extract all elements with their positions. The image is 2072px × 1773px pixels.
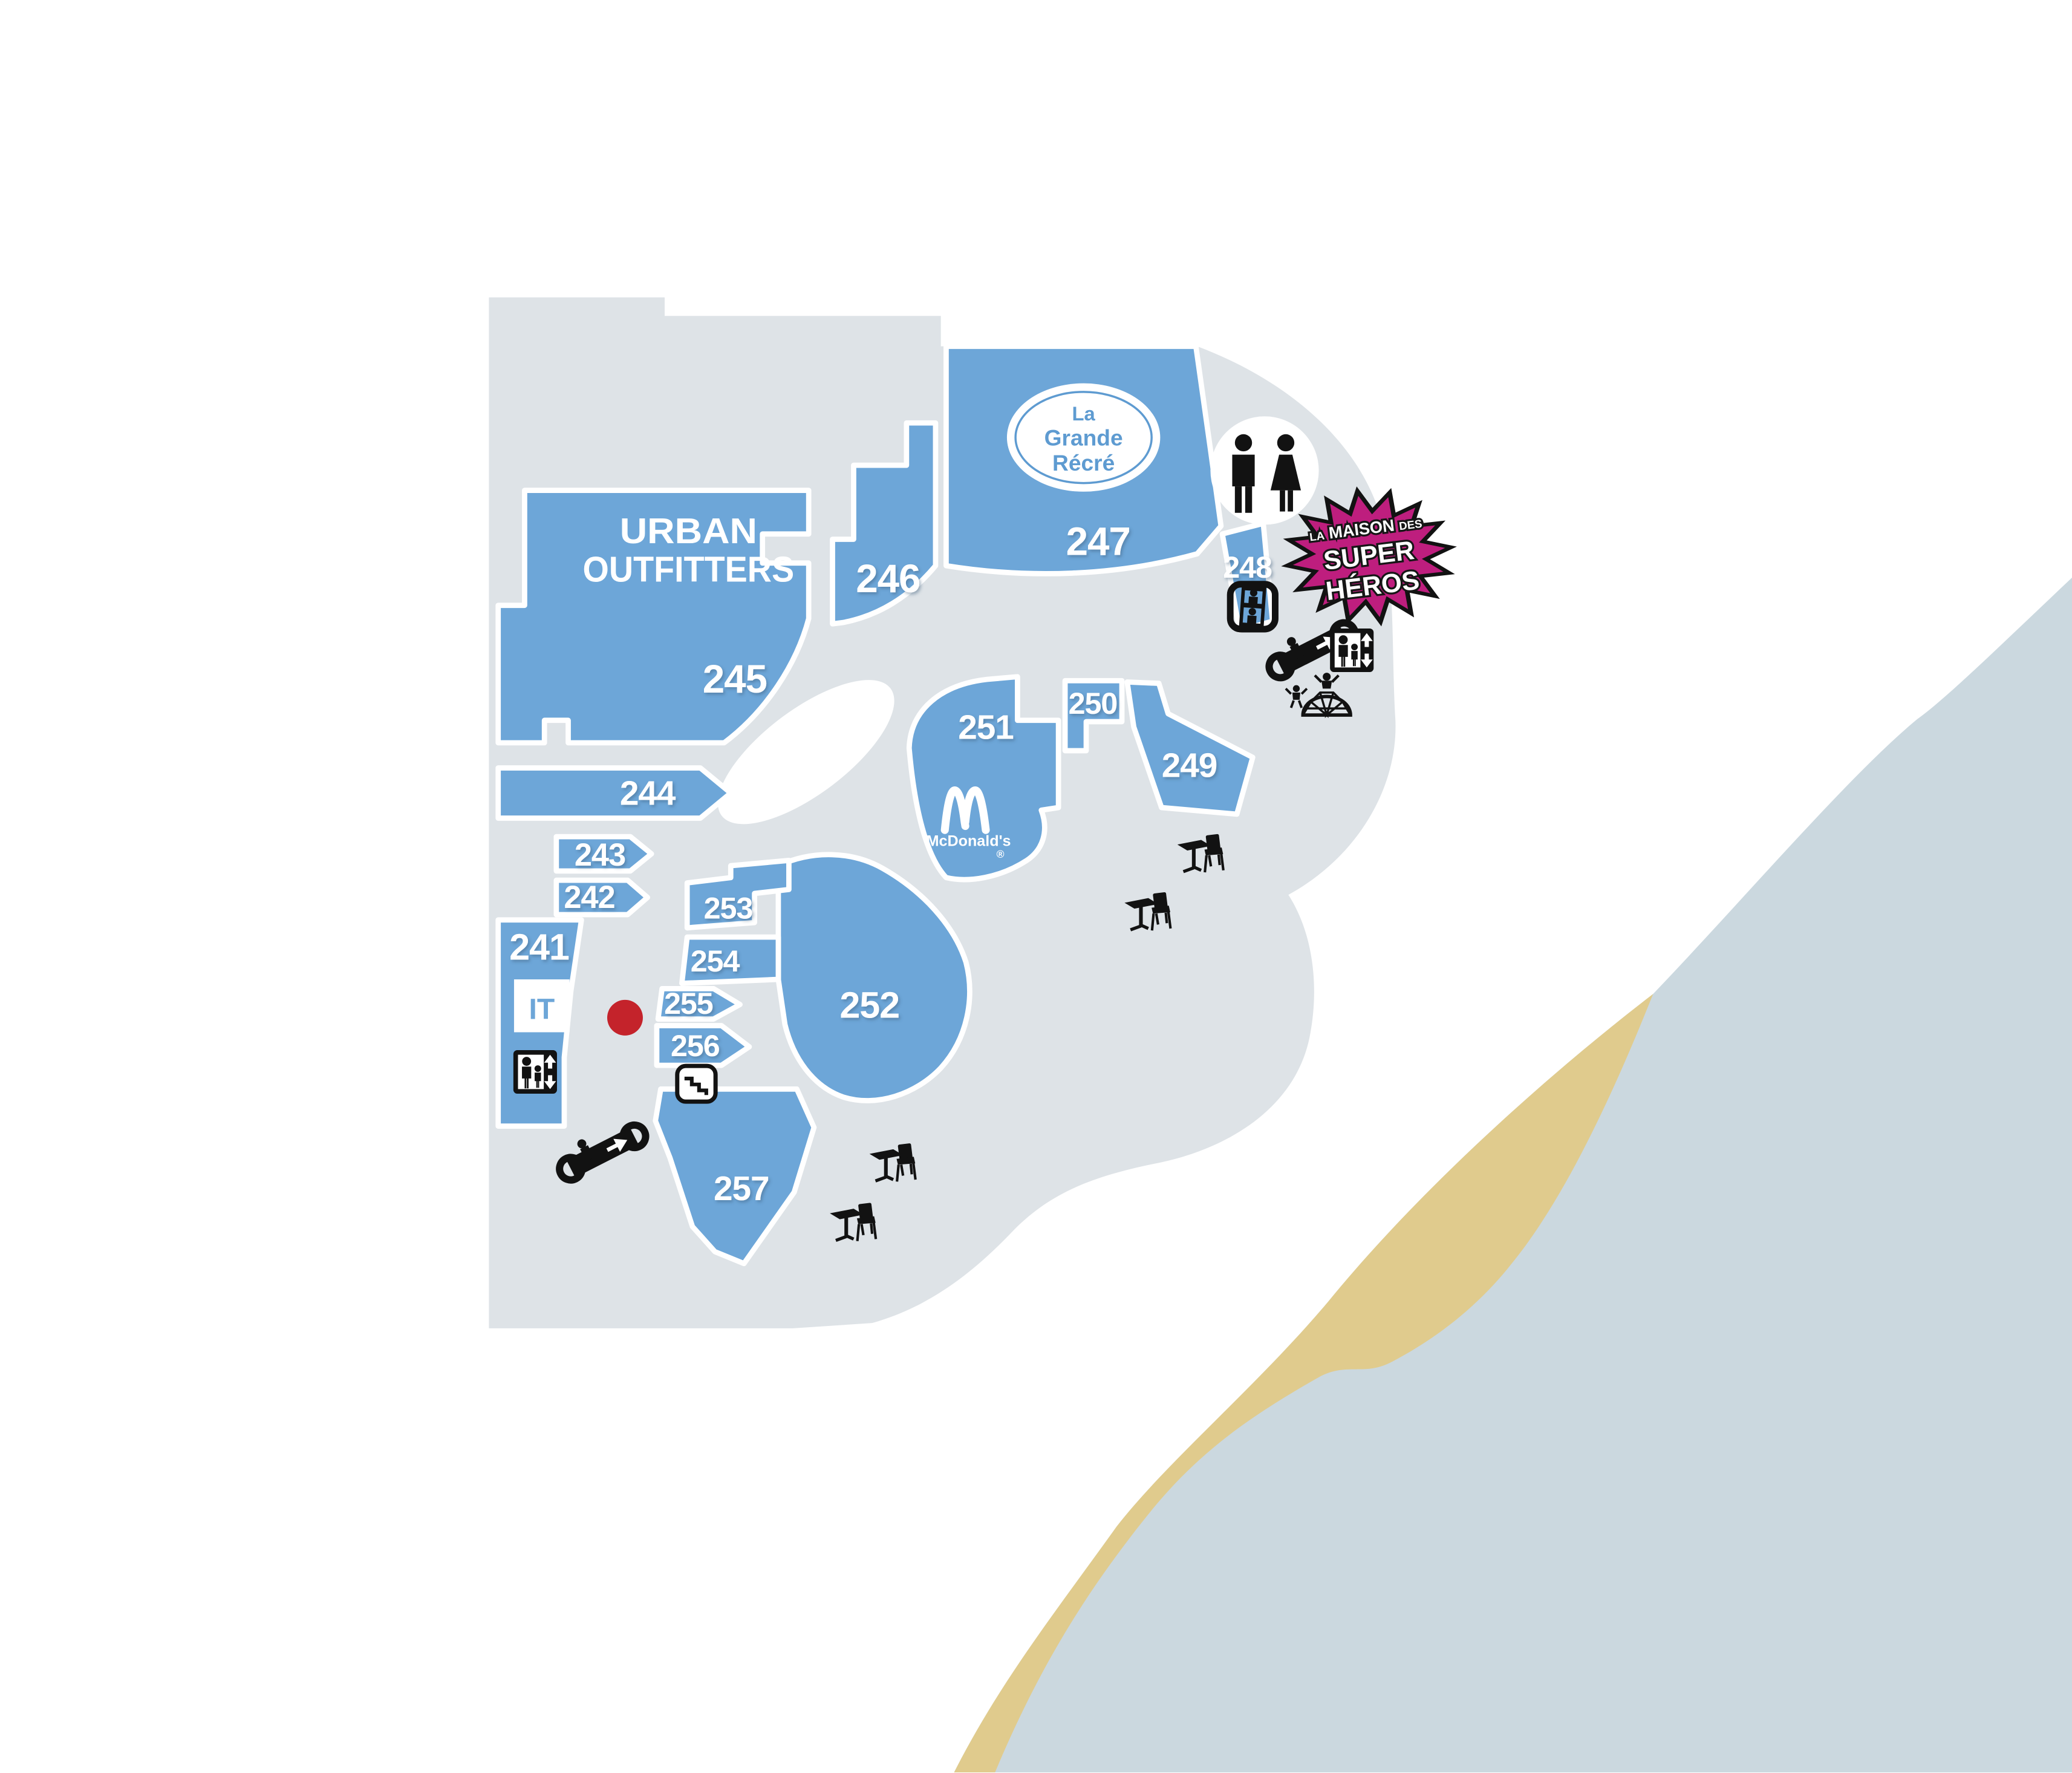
la-grande-recre-line1: La [1072,402,1096,425]
store-number-247: 247 [1066,520,1130,564]
store-number-243: 243 [575,838,625,873]
restroom-icon [1210,416,1318,524]
la-grande-recre-logo: La Grande Récré [1007,384,1160,492]
stairs-icon [677,1066,715,1102]
it-logo-text: IT [529,993,555,1026]
store-number-252: 252 [839,984,899,1025]
mcdonalds-wordmark: McDonald's [927,832,1011,849]
store-number-245: 245 [703,657,767,701]
it-logo: IT [514,979,570,1032]
la-grande-recre-line3: Récré [1052,450,1115,475]
store-244[interactable] [498,768,731,818]
store-number-249: 249 [1162,747,1217,785]
mall-map: 241 242 243 244 245 246 247 248 249 250 … [0,0,2072,1772]
store-number-244: 244 [620,775,676,813]
you-are-here-dot [607,1000,643,1036]
store-number-248: 248 [1223,550,1272,584]
elevator-icon-west [513,1050,557,1094]
elevator-icon-east [1330,629,1373,672]
store-number-256: 256 [671,1029,720,1063]
mcdonalds-registered-icon: ® [997,848,1005,860]
store-number-250: 250 [1069,687,1118,720]
store-number-241: 241 [509,926,569,967]
store-number-253: 253 [704,892,753,926]
store-number-242: 242 [564,880,614,915]
urban-outfitters-line1: URBAN [620,511,757,551]
store-number-254: 254 [691,944,740,978]
urban-outfitters-line2: OUTFITTERS [583,549,795,589]
store-number-257: 257 [714,1170,769,1208]
store-number-251: 251 [958,708,1014,746]
store-number-246: 246 [856,557,920,601]
store-number-255: 255 [664,987,713,1020]
la-grande-recre-line2: Grande [1044,425,1123,450]
